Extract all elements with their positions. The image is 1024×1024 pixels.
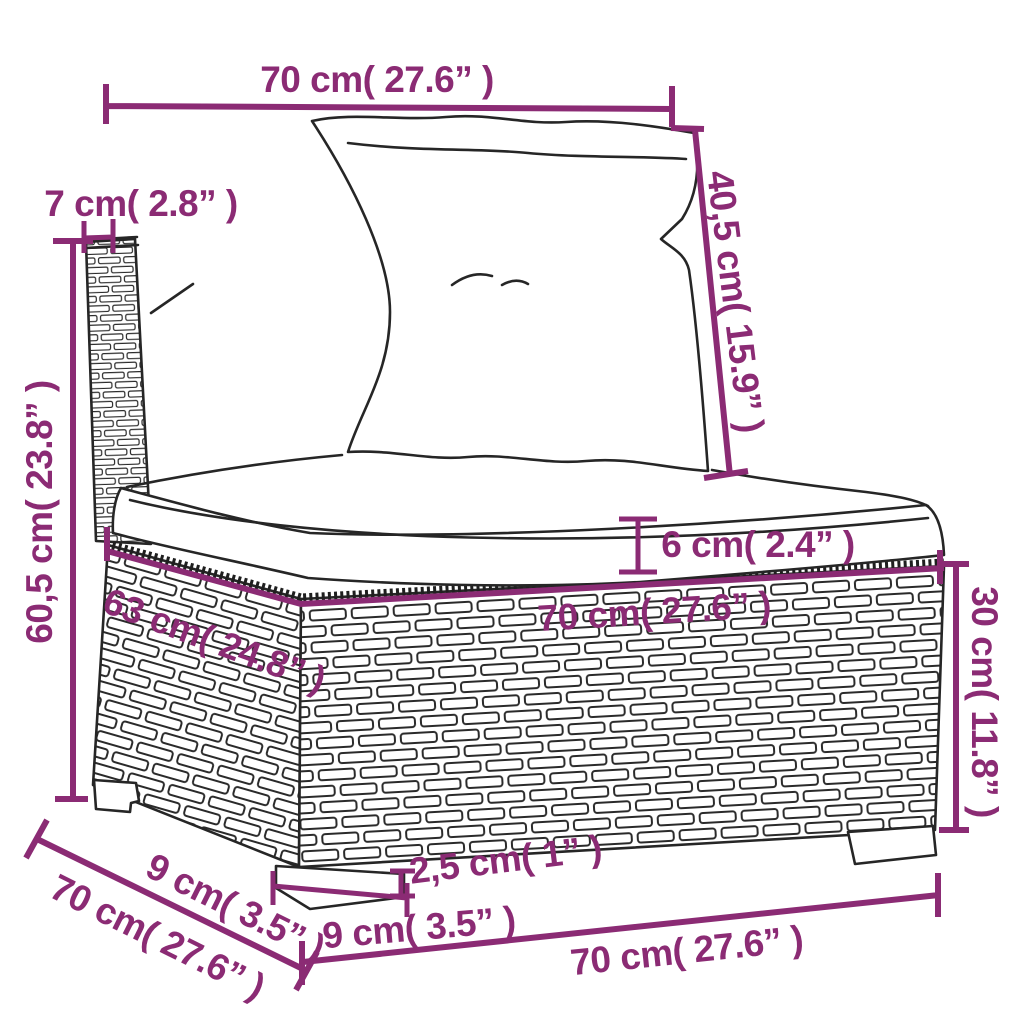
product-dimension-diagram: 70 cm( 27.6” ) 40,5 cm( 15.9” ) 7 cm( 2.…: [0, 0, 1024, 1024]
dim-label-back-frame-width: 7 cm( 2.8” ): [44, 183, 237, 224]
dim-label-total-height: 60,5 cm( 23.8” ): [19, 380, 60, 643]
dim-label-top-width: 70 cm( 27.6” ): [260, 59, 494, 100]
dim-label-seat-cushion-thickness: 6 cm( 2.4” ): [661, 524, 854, 565]
dim-label-base-height: 30 cm( 11.8” ): [964, 586, 1005, 818]
diagram-canvas: 70 cm( 27.6” ) 40,5 cm( 15.9” ) 7 cm( 2.…: [0, 0, 1024, 1024]
